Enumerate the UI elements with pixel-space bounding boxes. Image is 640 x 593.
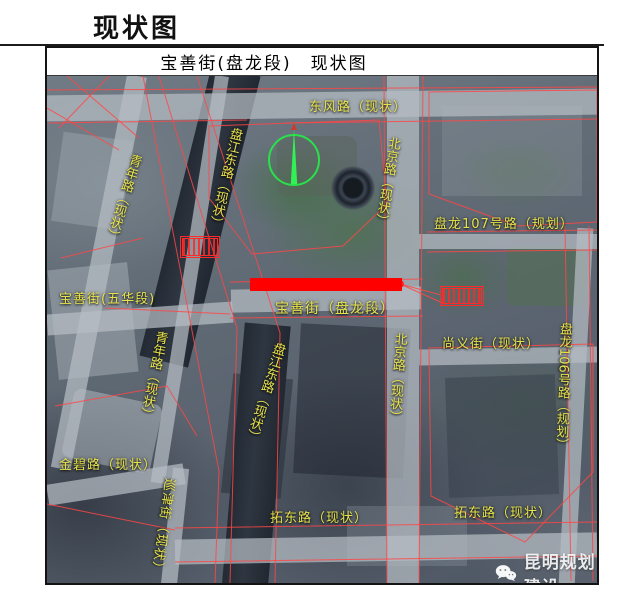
red-annotation-box-left xyxy=(180,236,220,258)
screenshot-canvas: 现状图 宝善街(盘龙段) 现状图 xyxy=(0,0,640,593)
page-title: 现状图 xyxy=(93,8,180,45)
label-dongfeng-road: 东风路（现状） xyxy=(309,96,407,115)
watermark: 昆明规划建设 xyxy=(495,548,597,583)
map-header-title: 宝善街(盘龙段) 现状图 xyxy=(160,49,367,74)
label-baoshan-street-wuhua: 宝善街(五华段) xyxy=(59,288,155,307)
label-baoshan-street-panlong: 宝善街（盘龙段） xyxy=(275,298,395,318)
label-tuodong-road-right: 拓东路（现状） xyxy=(454,502,552,521)
label-jinbi-road: 金碧路（现状） xyxy=(59,454,157,473)
satellite-map: 东风路（现状） 北京路（现状） 北京路（现状） 青年路（现状） 青年路（现状） … xyxy=(47,76,597,583)
map-frame: 宝善街(盘龙段) 现状图 xyxy=(45,46,599,585)
red-annotation-text-left xyxy=(182,238,218,256)
label-panlong-107-road: 盘龙107号路（规划） xyxy=(434,213,574,232)
map-header: 宝善街(盘龙段) 现状图 xyxy=(47,48,597,76)
circular-building xyxy=(331,166,375,210)
wechat-icon xyxy=(495,560,517,583)
watermark-text: 昆明规划建设 xyxy=(524,548,597,583)
red-annotation-text-right xyxy=(442,288,482,304)
red-annotation-box-right xyxy=(440,286,484,306)
highlight-bar-baoshan-segment xyxy=(250,278,402,291)
label-shangyi-street: 尚义街（现状） xyxy=(442,333,540,352)
label-tuodong-road-left: 拓东路（现状） xyxy=(270,507,368,526)
